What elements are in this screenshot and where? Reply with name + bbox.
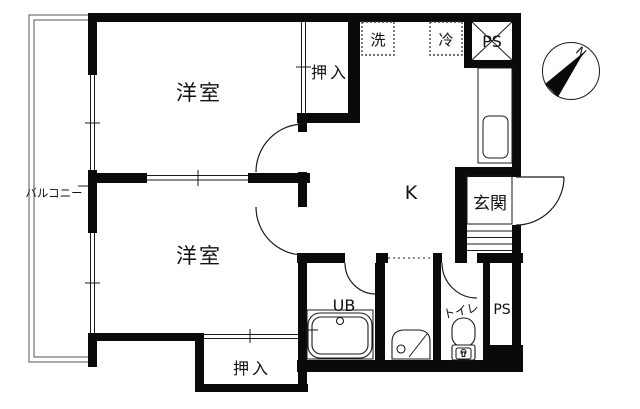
floor-plan-drawing: N 洋室 洋室 押入 押入 洗 冷 PS K 玄関 UB トイレ PS バルコニ…: [0, 0, 640, 409]
toilet-fixture: [452, 318, 475, 360]
bedroom-upper-door-arc: [256, 124, 304, 172]
entrance-steps: [467, 231, 512, 251]
compass: N: [543, 43, 600, 100]
washbasin: [392, 330, 430, 359]
bathtub: [307, 310, 373, 359]
bath-door-arc: [345, 263, 376, 294]
pipe-space-bottom-label: PS: [493, 302, 510, 318]
unit-bath-label: UB: [333, 296, 356, 315]
pipe-space-top-label: PS: [482, 32, 502, 51]
entrance-door-arc: [516, 177, 564, 225]
washer-space-label: 洗: [370, 31, 385, 49]
bedroom-lower-door-arc: [256, 207, 304, 255]
bedroom-upper-label: 洋室: [176, 81, 222, 105]
entrance-label: 玄関: [473, 194, 507, 214]
bedroom-lower-label: 洋室: [176, 244, 222, 268]
balcony-label: バルコニー: [25, 186, 82, 200]
floor-plan: N 洋室 洋室 押入 押入 洗 冷 PS K 玄関 UB トイレ PS バルコニ…: [0, 0, 640, 409]
washbasin-drain: [397, 345, 405, 353]
closet-lower-label: 押入: [233, 359, 271, 378]
kitchen-label: K: [405, 182, 418, 204]
refrigerator-space-label: 冷: [438, 31, 453, 49]
kitchen-counter: [478, 68, 512, 163]
kitchen-sink: [483, 116, 508, 158]
bath-faucet: [337, 318, 344, 325]
compass-north-label: N: [573, 44, 589, 60]
closet-upper-label: 押入: [311, 63, 349, 82]
toilet-door-arc: [442, 263, 477, 298]
